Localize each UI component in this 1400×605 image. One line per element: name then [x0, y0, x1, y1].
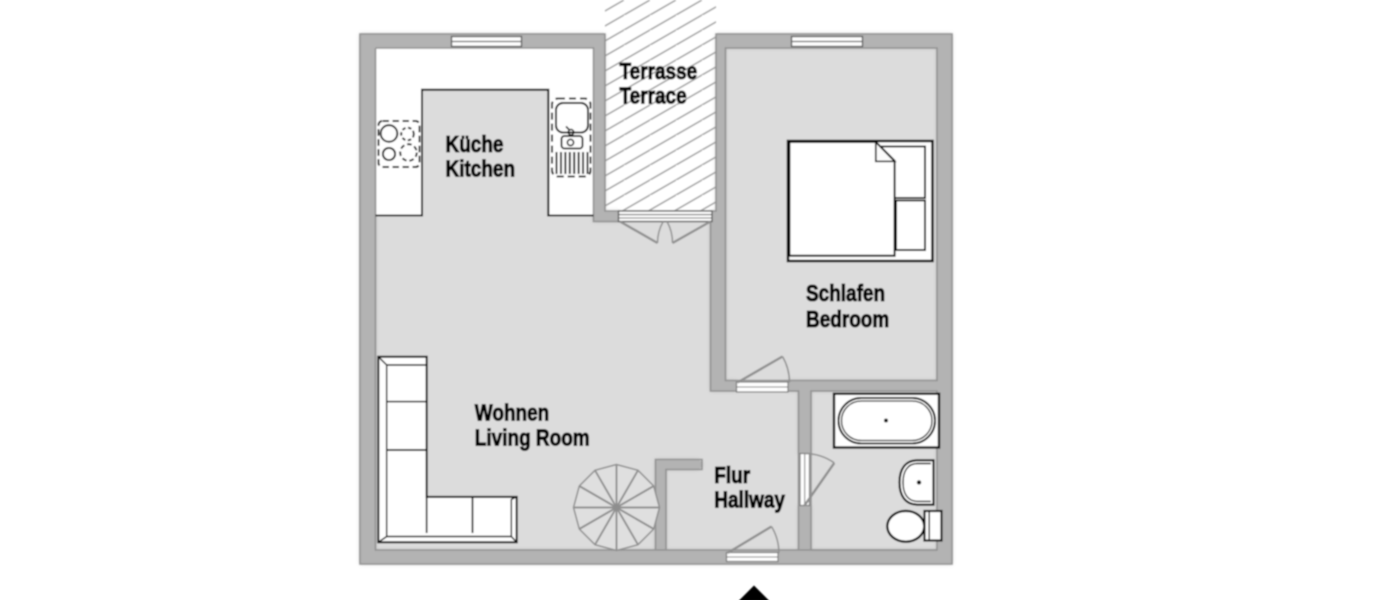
svg-text:Living Room: Living Room: [475, 426, 590, 451]
svg-text:Kitchen: Kitchen: [446, 157, 516, 182]
svg-text:Hallway: Hallway: [714, 488, 785, 513]
svg-text:Flur: Flur: [714, 463, 750, 488]
svg-text:Küche: Küche: [446, 132, 504, 157]
svg-text:Bedroom: Bedroom: [806, 308, 889, 333]
svg-text:Wohnen: Wohnen: [475, 401, 549, 426]
svg-text:Schlafen: Schlafen: [806, 282, 885, 307]
svg-text:Terrace: Terrace: [620, 84, 687, 109]
svg-text:Terrasse: Terrasse: [620, 60, 698, 85]
